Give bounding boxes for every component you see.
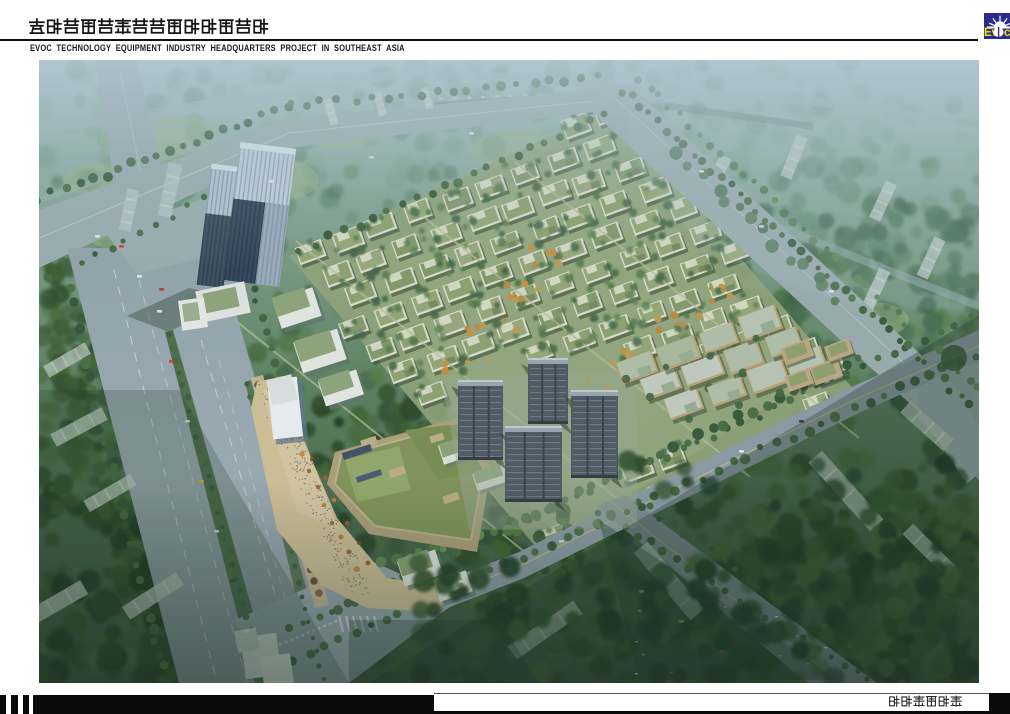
svg-text:c: c [1004, 27, 1010, 39]
